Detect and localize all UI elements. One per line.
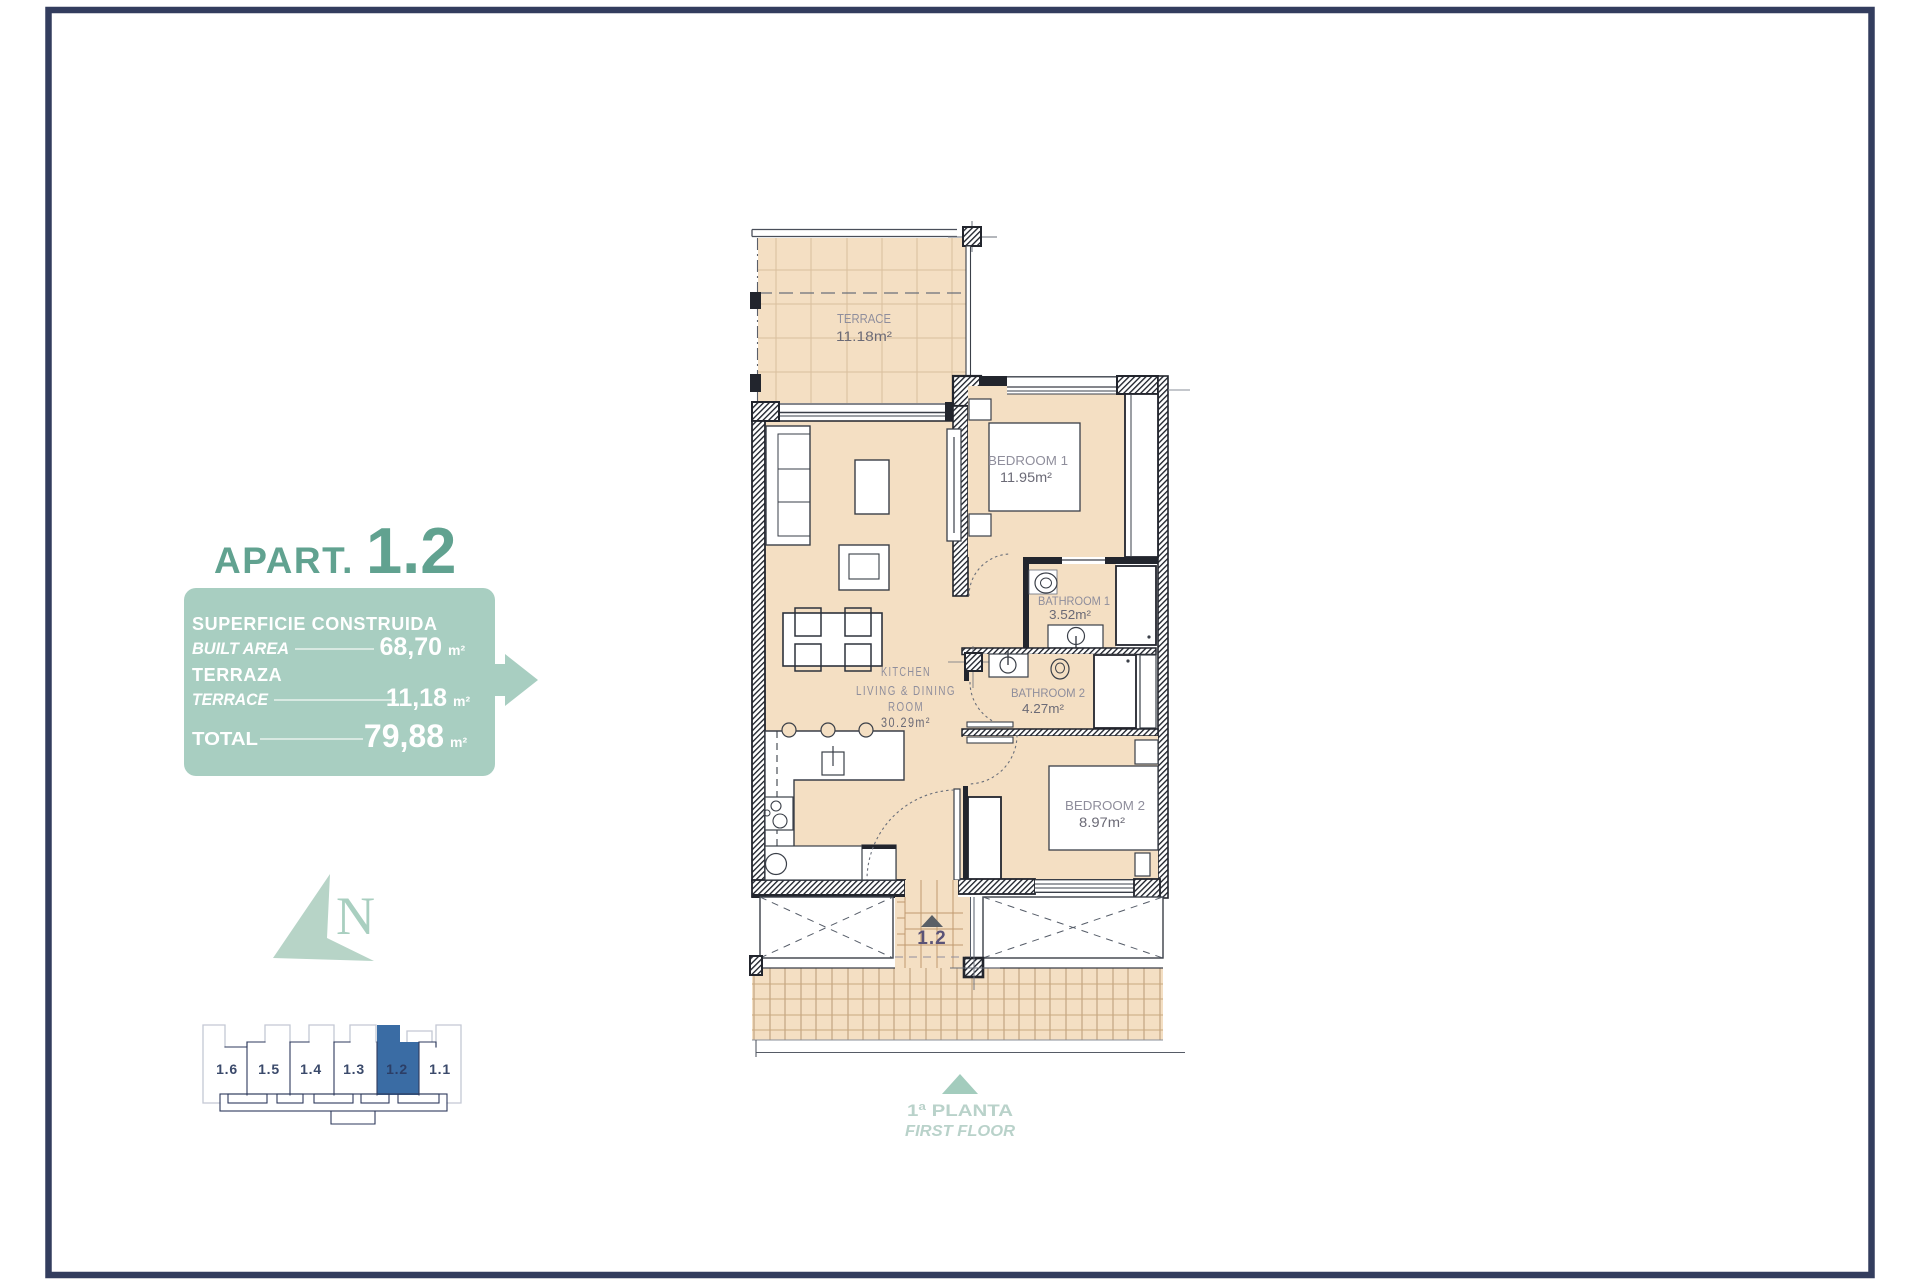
svg-text:TOTAL: TOTAL — [192, 729, 258, 749]
svg-text:BUILT AREA: BUILT AREA — [192, 640, 289, 658]
svg-text:11,18: 11,18 — [386, 684, 447, 712]
svg-text:APART.: APART. — [214, 540, 354, 581]
svg-text:m²: m² — [448, 642, 465, 658]
svg-text:BATHROOM 1: BATHROOM 1 — [1038, 594, 1110, 608]
svg-text:68,70: 68,70 — [379, 633, 442, 661]
svg-text:1.2: 1.2 — [386, 1061, 408, 1077]
svg-text:N: N — [336, 886, 375, 946]
svg-text:ROOM: ROOM — [888, 700, 924, 714]
svg-text:1.4: 1.4 — [300, 1061, 322, 1077]
svg-text:3.52m²: 3.52m² — [1049, 607, 1092, 622]
svg-text:m²: m² — [453, 693, 470, 709]
svg-text:TERRACE: TERRACE — [837, 312, 891, 326]
svg-text:79,88: 79,88 — [364, 718, 444, 754]
svg-text:KITCHEN: KITCHEN — [881, 665, 931, 679]
svg-text:BEDROOM 2: BEDROOM 2 — [1065, 799, 1145, 813]
svg-text:30.29m²: 30.29m² — [881, 715, 931, 730]
svg-text:8.97m²: 8.97m² — [1079, 815, 1126, 830]
svg-text:4.27m²: 4.27m² — [1022, 701, 1065, 716]
svg-text:1.2: 1.2 — [917, 928, 946, 949]
svg-text:BEDROOM 1: BEDROOM 1 — [988, 454, 1068, 468]
svg-text:BATHROOM 2: BATHROOM 2 — [1011, 686, 1085, 700]
svg-text:1ª PLANTA: 1ª PLANTA — [907, 1101, 1013, 1120]
svg-text:TERRAZA: TERRAZA — [192, 665, 282, 685]
svg-text:1.1: 1.1 — [429, 1061, 451, 1077]
svg-text:1.2: 1.2 — [366, 514, 456, 587]
svg-text:1.3: 1.3 — [343, 1061, 365, 1077]
svg-text:SUPERFICIE CONSTRUIDA: SUPERFICIE CONSTRUIDA — [192, 614, 438, 634]
svg-text:m²: m² — [450, 734, 467, 750]
svg-text:FIRST FLOOR: FIRST FLOOR — [905, 1123, 1015, 1140]
svg-text:1.6: 1.6 — [216, 1061, 238, 1077]
svg-text:1.5: 1.5 — [258, 1061, 280, 1077]
svg-text:11.95m²: 11.95m² — [1000, 470, 1053, 485]
svg-text:TERRACE: TERRACE — [192, 691, 269, 709]
svg-text:11.18m²: 11.18m² — [836, 329, 893, 344]
svg-text:LIVING & DINING: LIVING & DINING — [856, 684, 956, 698]
